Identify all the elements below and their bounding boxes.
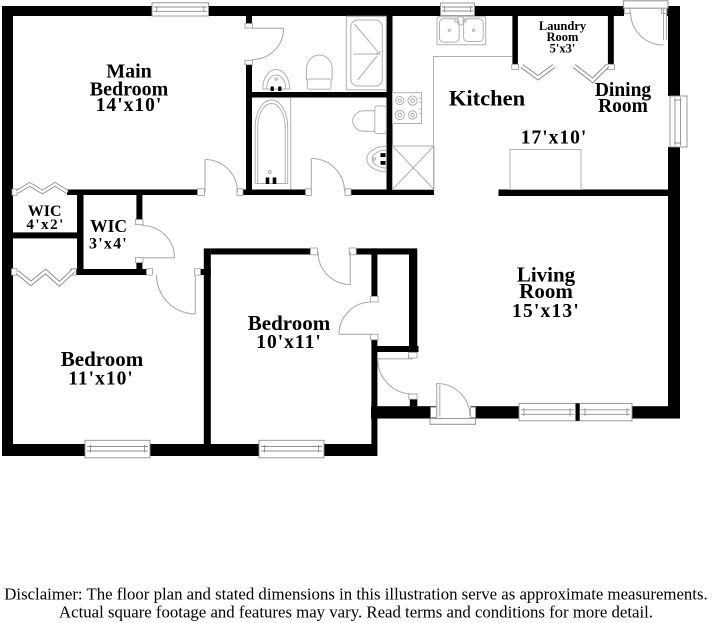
svg-text:4'x2': 4'x2' [26, 217, 64, 233]
svg-text:Disclaimer: The floor plan and: Disclaimer: The floor plan and stated di… [4, 585, 707, 604]
svg-text:Room: Room [519, 279, 573, 303]
svg-text:15'x13': 15'x13' [512, 301, 580, 322]
svg-text:Bedroom: Bedroom [61, 347, 144, 371]
svg-text:Kitchen: Kitchen [449, 86, 526, 111]
svg-text:17'x10': 17'x10' [521, 128, 588, 149]
svg-text:WIC: WIC [90, 216, 127, 236]
svg-text:10'x11': 10'x11' [256, 332, 322, 353]
svg-text:5'x3': 5'x3' [550, 42, 576, 56]
svg-text:11'x10': 11'x10' [68, 369, 134, 390]
svg-text:Actual square footage and feat: Actual square footage and features may v… [59, 603, 653, 622]
svg-text:14'x10': 14'x10' [96, 95, 163, 116]
svg-text:Room: Room [598, 96, 648, 117]
svg-text:3'x4': 3'x4' [89, 236, 128, 253]
